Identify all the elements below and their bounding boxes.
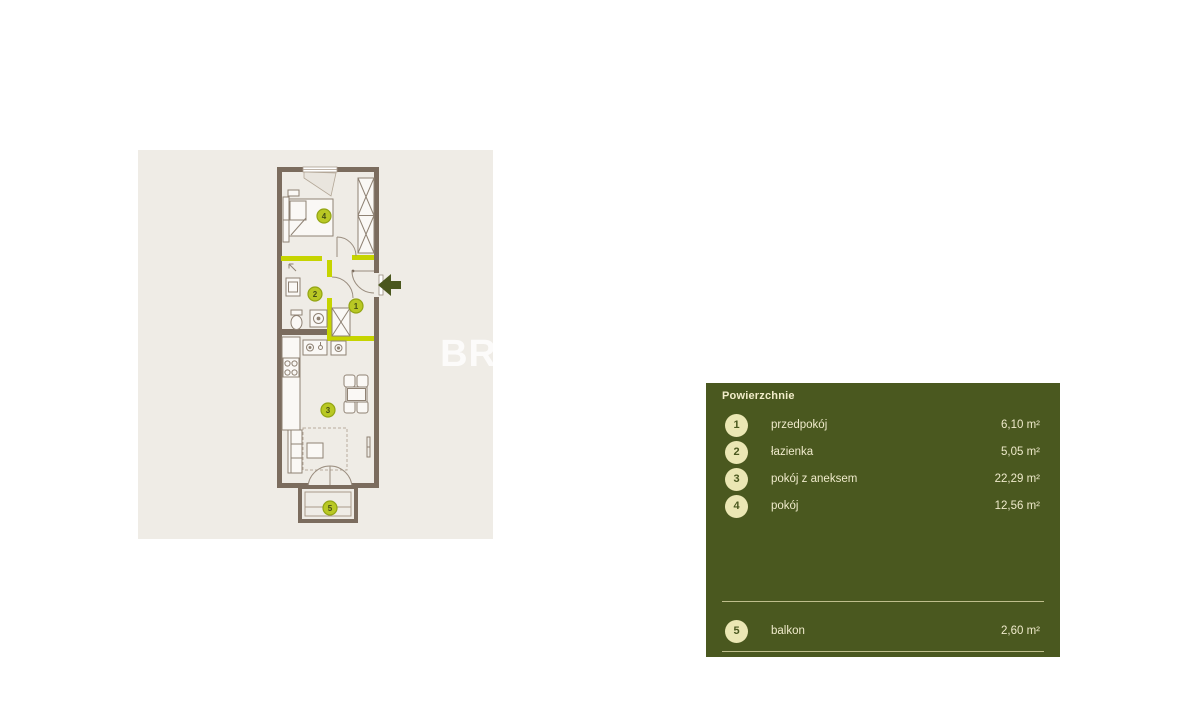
legend-row: 4 pokój 12,56 m² [706,494,1060,518]
room-label: pokój z aneksem [771,473,857,485]
closet-icon [332,308,350,336]
plan-badge-4: 4 [322,212,327,221]
room-area: 12,56 m² [995,500,1040,512]
stove-icon [331,341,346,355]
room-label: przedpokój [771,419,827,431]
room-area: 5,05 m² [1001,446,1040,458]
window-icon [303,167,337,196]
room-label: pokój [771,500,799,512]
room-label: łazienka [771,446,813,458]
washing-machine-icon [310,310,327,327]
entrance-door-icon [352,270,383,295]
bench-icon [283,197,289,242]
kitchen-counter-icon [282,337,300,430]
room-label: balkon [771,625,805,637]
legend-row: 5 balkon 2,60 m² [706,619,1060,643]
room-area: 22,29 m² [995,473,1040,485]
plan-badge-2: 2 [313,290,318,299]
sink-icon [286,278,300,296]
dining-set-icon [344,375,368,413]
panel-title: Powierzchnie [722,390,795,402]
plan-badge-3: 3 [326,406,331,415]
separator [722,601,1044,602]
interior-wall [282,329,329,335]
plan-badges: 1 2 3 4 5 [308,209,363,515]
radiator-icon [367,437,370,457]
direction-arrow-icon [289,264,296,271]
shelf-icon [288,190,299,196]
room-number-badge: 3 [725,468,748,491]
balcony-doors-icon [308,466,352,488]
room-number-badge: 2 [725,441,748,464]
kitchen-sink-icon [303,340,327,355]
coffee-table-icon [307,443,323,458]
room-area: 6,10 m² [1001,419,1040,431]
room-area: 2,60 m² [1001,625,1040,637]
room-number-badge: 4 [725,495,748,518]
room-number-badge: 1 [725,414,748,437]
separator [722,651,1044,652]
watermark: BR [440,333,493,376]
plan-badge-5: 5 [328,504,333,513]
bathroom-door-icon [332,277,353,298]
legend-row: 3 pokój z aneksem 22,29 m² [706,467,1060,491]
areas-panel: Powierzchnie 1 przedpokój 6,10 m² 2 łazi… [706,383,1060,657]
legend-row: 1 przedpokój 6,10 m² [706,413,1060,437]
sofa-icon [288,430,302,473]
floorplan-canvas: 1 2 3 4 5 BR [138,150,493,539]
plan-badge-1: 1 [354,302,359,311]
toilet-icon [291,310,302,330]
legend-row: 2 łazienka 5,05 m² [706,440,1060,464]
room-door-icon [337,237,356,257]
room-number-badge: 5 [725,620,748,643]
wardrobe-icon [358,178,374,253]
